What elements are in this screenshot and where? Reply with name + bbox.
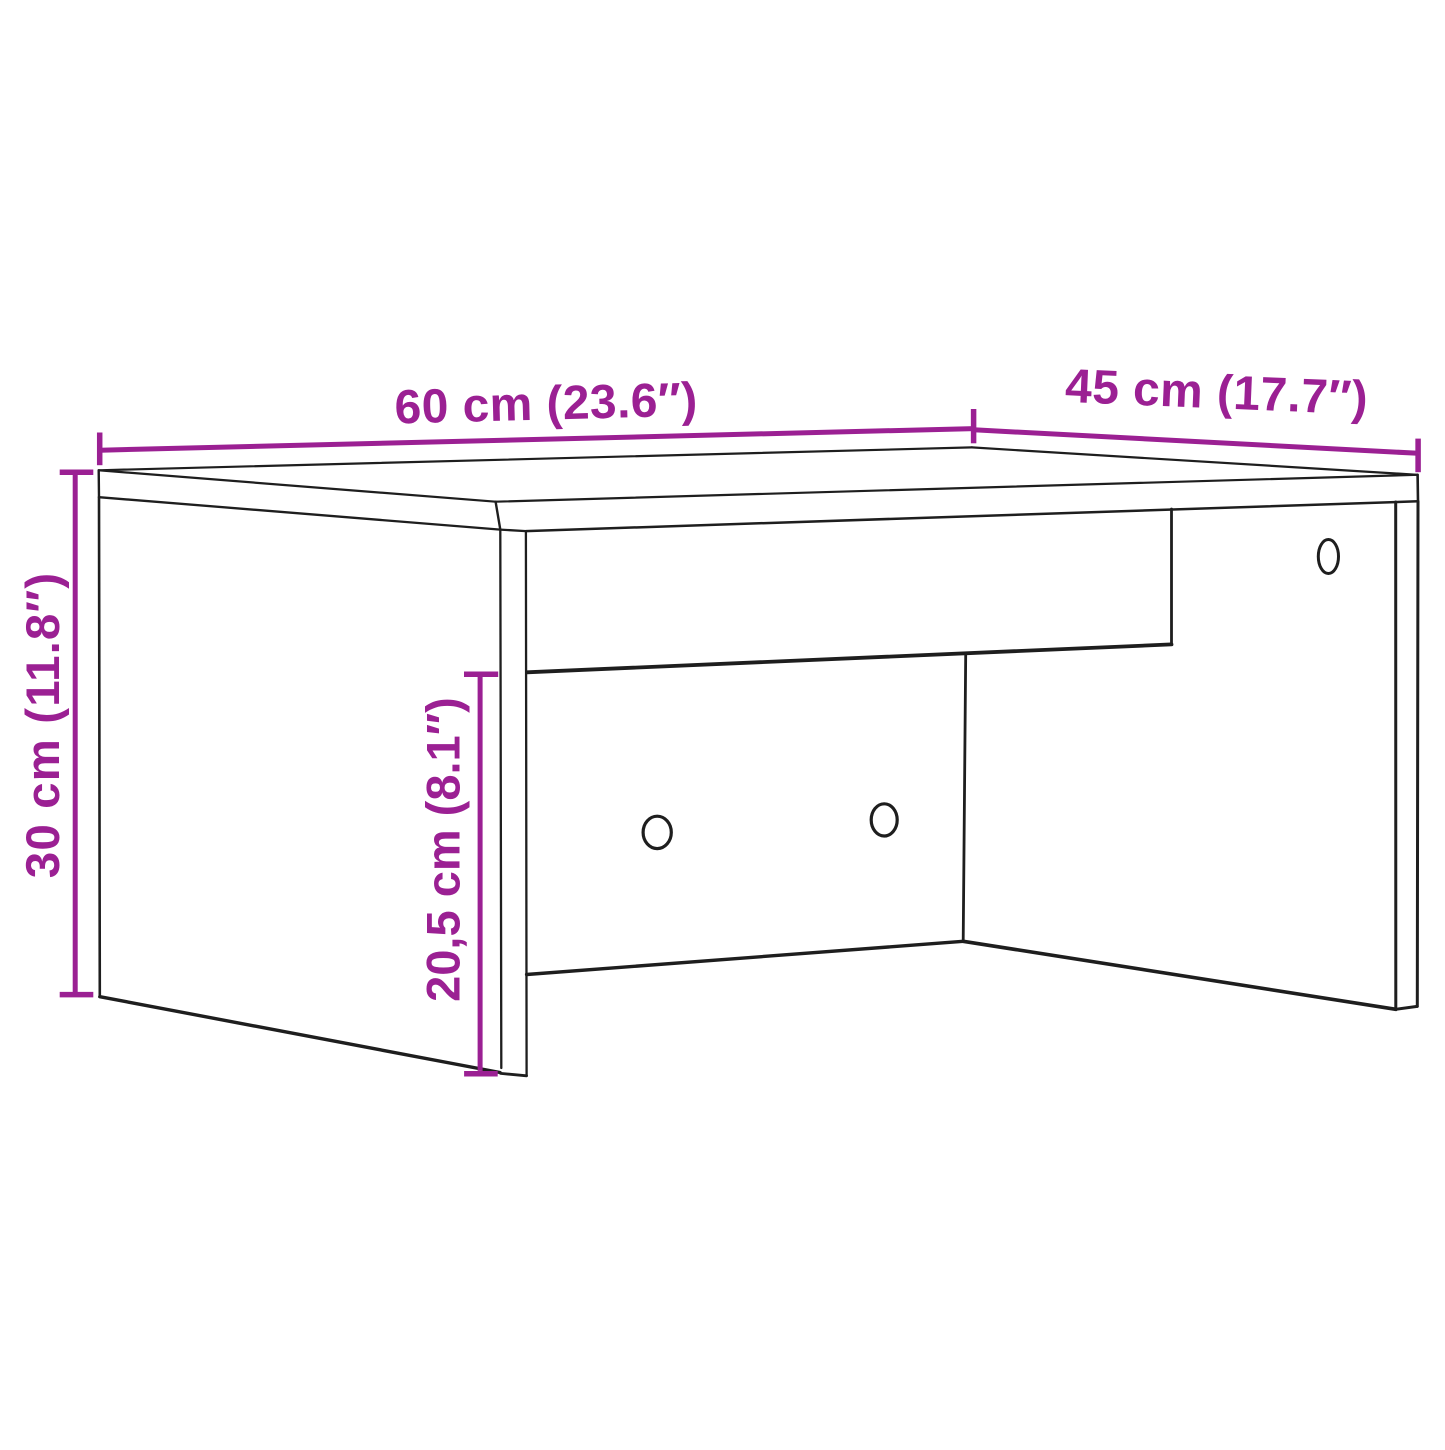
svg-text:30 cm (11.8″): 30 cm (11.8″) [17, 572, 70, 878]
svg-text:60 cm (23.6″): 60 cm (23.6″) [394, 374, 698, 435]
svg-text:20,5 cm (8.1″): 20,5 cm (8.1″) [416, 697, 469, 1002]
